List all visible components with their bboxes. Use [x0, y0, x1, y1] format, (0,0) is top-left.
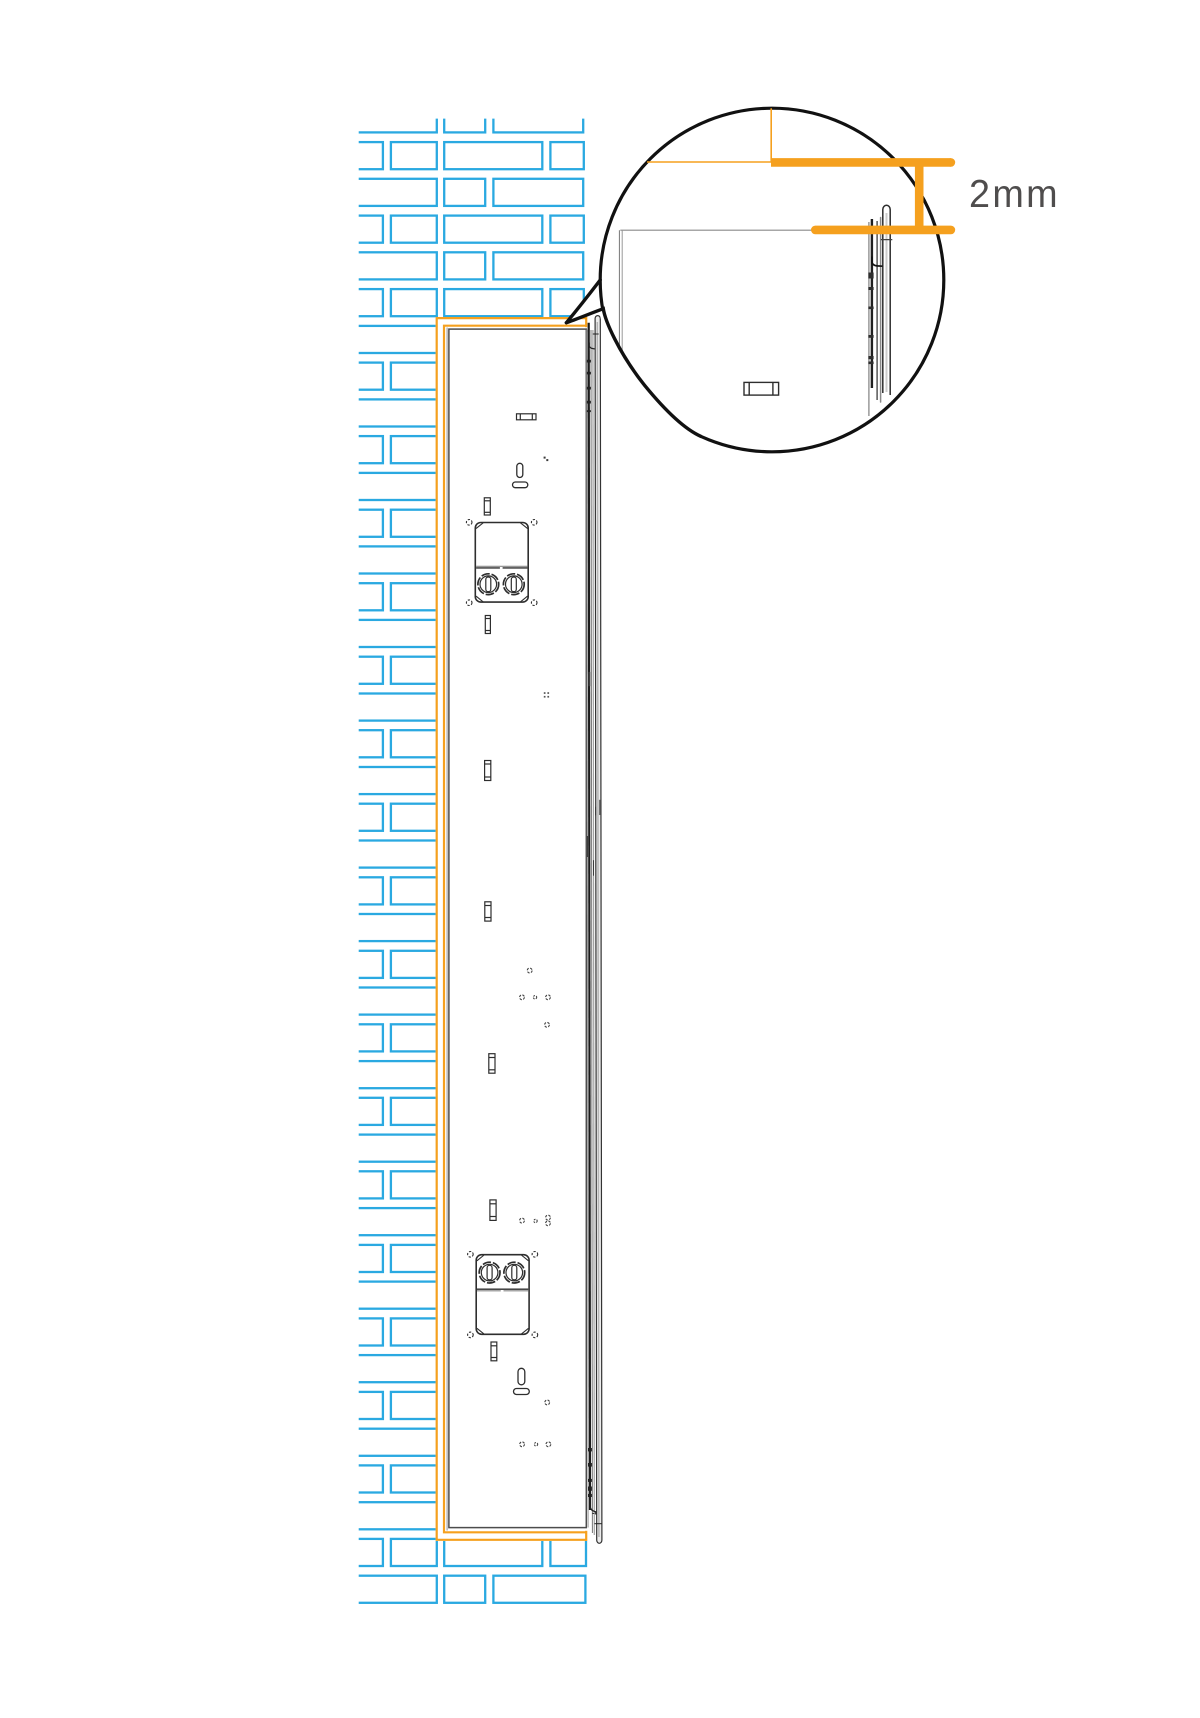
svg-text:2mm: 2mm [969, 173, 1060, 216]
